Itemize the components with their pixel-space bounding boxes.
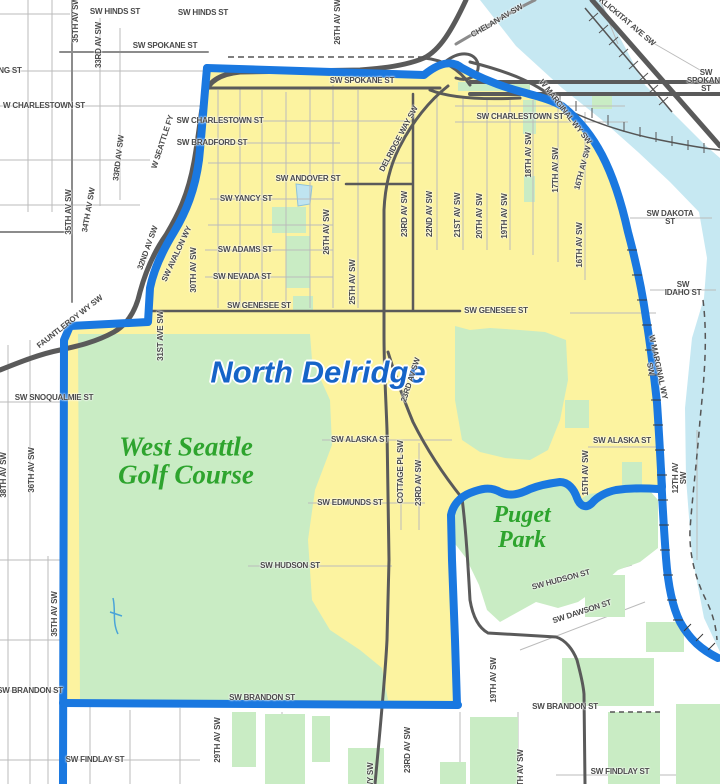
place-label: West Seattle Golf Course <box>118 433 254 490</box>
street-label: 33RD AV SW <box>112 135 126 182</box>
street-label: 18TH AV SW <box>525 132 533 177</box>
street-label: 22ND AV SW <box>426 191 434 237</box>
street-label: KLICKITAT AVE SW <box>597 0 656 48</box>
place-label: North Delridge <box>210 357 425 388</box>
street-label: 23RD AV SW <box>404 727 412 773</box>
street-label: 35TH AV SW <box>51 591 59 636</box>
street-label: 32ND AV SW <box>136 225 159 271</box>
street-label: SW FINDLAY ST <box>591 768 650 776</box>
street-label: 18TH AV SW <box>517 749 525 784</box>
street-label: 12TH AV SW <box>672 458 688 498</box>
map-labels: SW HINDS STSW HINDS ST35TH AV SW26TH AV … <box>0 0 720 784</box>
street-label: 36TH AV SW <box>28 447 36 492</box>
street-label: SW HUDSON ST <box>531 568 591 591</box>
street-label: W CHARLESTOWN ST <box>3 102 85 110</box>
street-label: SW NEVADA ST <box>213 273 271 281</box>
street-label: 15TH AV SW <box>582 450 590 495</box>
street-label: 20TH AV SW <box>476 193 484 238</box>
street-label: SW ANDOVER ST <box>276 175 341 183</box>
north-delridge-map: SW HINDS STSW HINDS ST35TH AV SW26TH AV … <box>0 0 720 784</box>
street-label: CHELAN AV SW <box>470 3 525 39</box>
street-label: SW HUDSON ST <box>260 562 320 570</box>
street-label: SW DAWSON ST <box>552 599 613 626</box>
street-label: SW HINDS ST <box>178 9 228 17</box>
street-label: 33RD AV SW <box>95 22 103 68</box>
street-label: SW SPOKANE ST <box>330 77 395 85</box>
street-label: SW IDAHO ST <box>665 281 702 297</box>
street-label: W MARGINAL WY SW <box>639 334 668 402</box>
street-label: SW BRADFORD ST <box>177 139 248 147</box>
street-label: DELRIDGE WAY SW <box>378 105 419 173</box>
street-label: 38TH AV SW <box>0 452 8 497</box>
street-label: SW CHARLESTOWN ST <box>476 113 563 121</box>
street-label: 16TH AV SW <box>573 145 592 191</box>
street-label: SW BRANDON ST <box>0 687 63 695</box>
street-label: 23RD AV SW <box>415 460 423 506</box>
street-label: 31ST AVE SW <box>157 311 165 361</box>
street-label: WY SW <box>367 763 375 784</box>
street-label: 21ST AV SW <box>454 193 462 238</box>
street-label: 17TH AV SW <box>552 147 560 192</box>
street-label: 23RD AV SW <box>401 191 409 237</box>
street-label: 35TH AV SW <box>65 189 73 234</box>
street-label: SW FINDLAY ST <box>66 756 125 764</box>
street-label: SW SPOKANE ST <box>133 42 198 50</box>
street-label: 35TH AV SW <box>72 0 80 43</box>
street-label: NG ST <box>0 67 22 75</box>
street-label: 23RD AV SW <box>400 357 422 403</box>
street-label: 26TH AV SW <box>334 0 342 45</box>
street-label: SW ALASKA ST <box>331 436 389 444</box>
street-label: 25TH AV SW <box>349 259 357 304</box>
street-label: 29TH AV SW <box>214 717 222 762</box>
street-label: SW GENESEE ST <box>464 307 528 315</box>
street-label: SW CHARLESTOWN ST <box>176 117 263 125</box>
street-label: COTTAGE PL SW <box>397 440 405 503</box>
street-label: W SEATTLE FY <box>151 114 176 169</box>
street-label: 19TH AV SW <box>501 193 509 238</box>
street-label: W MARGINAL WY SW <box>537 78 592 146</box>
street-label: 30TH AV SW <box>190 247 198 292</box>
street-label: SW DAKOTA ST <box>645 210 695 226</box>
street-label: 19TH AV SW <box>490 657 498 702</box>
street-label: SW ALASKA ST <box>593 437 651 445</box>
street-label: FAUNTLEROY WY SW <box>36 294 105 350</box>
street-label: 16TH AV SW <box>576 222 584 267</box>
street-label: SW YANCY ST <box>220 195 272 203</box>
street-label: SW SNOQUALMIE ST <box>15 394 94 402</box>
street-label: 34TH AV SW <box>81 187 97 233</box>
street-label: 26TH AV SW <box>323 209 331 254</box>
street-label: SW SPOKANE ST <box>687 69 720 93</box>
street-label: SW ADAMS ST <box>218 246 272 254</box>
street-label: SW GENESEE ST <box>227 302 291 310</box>
street-label: SW HINDS ST <box>90 8 140 16</box>
street-label: SW EDMUNDS ST <box>317 499 382 507</box>
street-label: SW BRANDON ST <box>532 703 598 711</box>
place-label: Puget Park <box>493 503 550 553</box>
street-label: SW BRANDON ST <box>229 694 295 702</box>
street-label: SW AVALON WY <box>161 225 194 283</box>
